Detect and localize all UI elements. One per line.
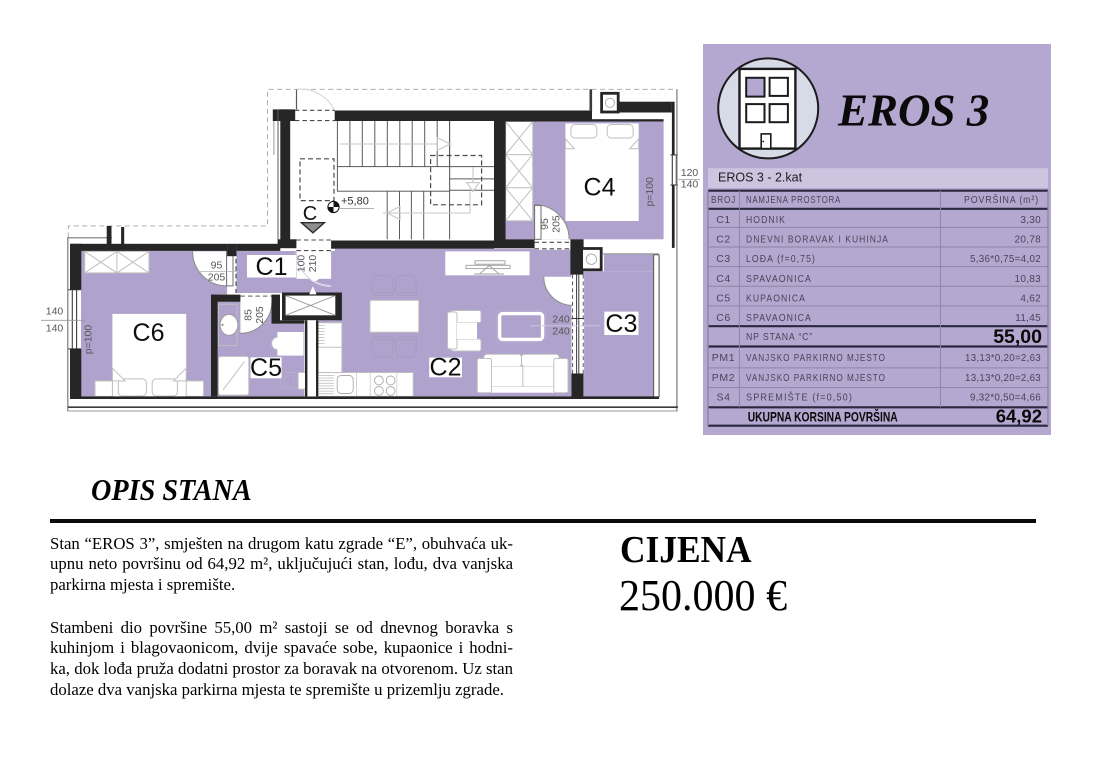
svg-text:C6: C6 [716,312,731,324]
svg-text:KUPAONICA: KUPAONICA [746,292,806,304]
svg-text:240: 240 [552,326,570,338]
svg-text:C1: C1 [256,253,288,281]
svg-text:NP STANA “C”: NP STANA “C” [746,331,813,343]
svg-text:C2: C2 [430,354,462,382]
svg-text:C: C [303,203,317,225]
svg-text:140: 140 [681,179,699,191]
svg-text:205: 205 [551,215,563,233]
svg-text:9,32*0,50=4,66: 9,32*0,50=4,66 [970,393,1041,404]
svg-text:20,78: 20,78 [1014,235,1041,246]
svg-text:C4: C4 [716,273,731,285]
svg-text:55,00: 55,00 [993,326,1042,348]
svg-text:64,92: 64,92 [996,406,1042,427]
svg-text:LOĐA (f=0,75): LOĐA (f=0,75) [746,253,816,265]
svg-text:PM2: PM2 [712,372,735,384]
svg-text:NAMJENA PROSTORA: NAMJENA PROSTORA [746,194,841,206]
svg-text:210: 210 [307,255,319,273]
svg-text:C4: C4 [584,174,616,202]
svg-text:DNEVNI BORAVAK I KUHINJA: DNEVNI BORAVAK I KUHINJA [746,234,889,246]
svg-text:EROS 3 - 2.kat: EROS 3 - 2.kat [718,171,803,185]
svg-text:C1: C1 [716,214,731,226]
svg-text:5,36*0,75=4,02: 5,36*0,75=4,02 [970,254,1041,265]
svg-text:13,13*0,20=2,63: 13,13*0,20=2,63 [965,373,1041,384]
svg-text:SPREMIŠTE (f=0,50): SPREMIŠTE (f=0,50) [746,391,853,404]
svg-text:EROS 3: EROS 3 [837,86,989,136]
svg-text:C6: C6 [133,319,165,347]
svg-text:C3: C3 [716,253,731,265]
svg-text:C5: C5 [716,292,731,304]
svg-text:100: 100 [296,255,308,273]
svg-text:85: 85 [243,309,255,321]
svg-text:4,62: 4,62 [1020,293,1041,304]
svg-text:BROJ: BROJ [711,194,736,206]
svg-text:140: 140 [46,306,64,318]
svg-text:S4: S4 [716,392,730,404]
svg-text:C3: C3 [605,310,637,338]
svg-text:140: 140 [46,323,64,335]
svg-text:11,45: 11,45 [1015,313,1041,324]
svg-text:UKUPNA KORSINA POVRŠINA: UKUPNA KORSINA POVRŠINA [748,407,898,424]
svg-text:POVRŠINA (m²): POVRŠINA (m²) [964,193,1039,206]
svg-text:240: 240 [552,314,570,326]
svg-text:HODNIK: HODNIK [746,214,786,226]
svg-text:+5,80: +5,80 [341,196,369,208]
svg-text:VANJSKO PARKIRNO MJESTO: VANJSKO PARKIRNO MJESTO [746,372,886,384]
svg-text:13,13*0,20=2,63: 13,13*0,20=2,63 [965,353,1041,364]
svg-text:C2: C2 [716,234,731,246]
svg-text:SPAVAONICA: SPAVAONICA [746,312,812,324]
svg-text:205: 205 [254,306,266,324]
svg-text:p=100: p=100 [644,177,656,207]
svg-text:95: 95 [539,218,551,230]
svg-text:VANJSKO PARKIRNO MJESTO: VANJSKO PARKIRNO MJESTO [746,352,886,364]
svg-text:p=100: p=100 [83,325,95,355]
svg-text:120: 120 [681,167,699,179]
svg-text:SPAVAONICA: SPAVAONICA [746,273,812,285]
svg-text:10,83: 10,83 [1014,274,1041,285]
svg-text:205: 205 [208,272,226,284]
svg-text:PM1: PM1 [712,352,735,364]
svg-text:C5: C5 [250,354,282,382]
svg-text:95: 95 [211,260,223,272]
svg-text:3,30: 3,30 [1020,215,1041,226]
